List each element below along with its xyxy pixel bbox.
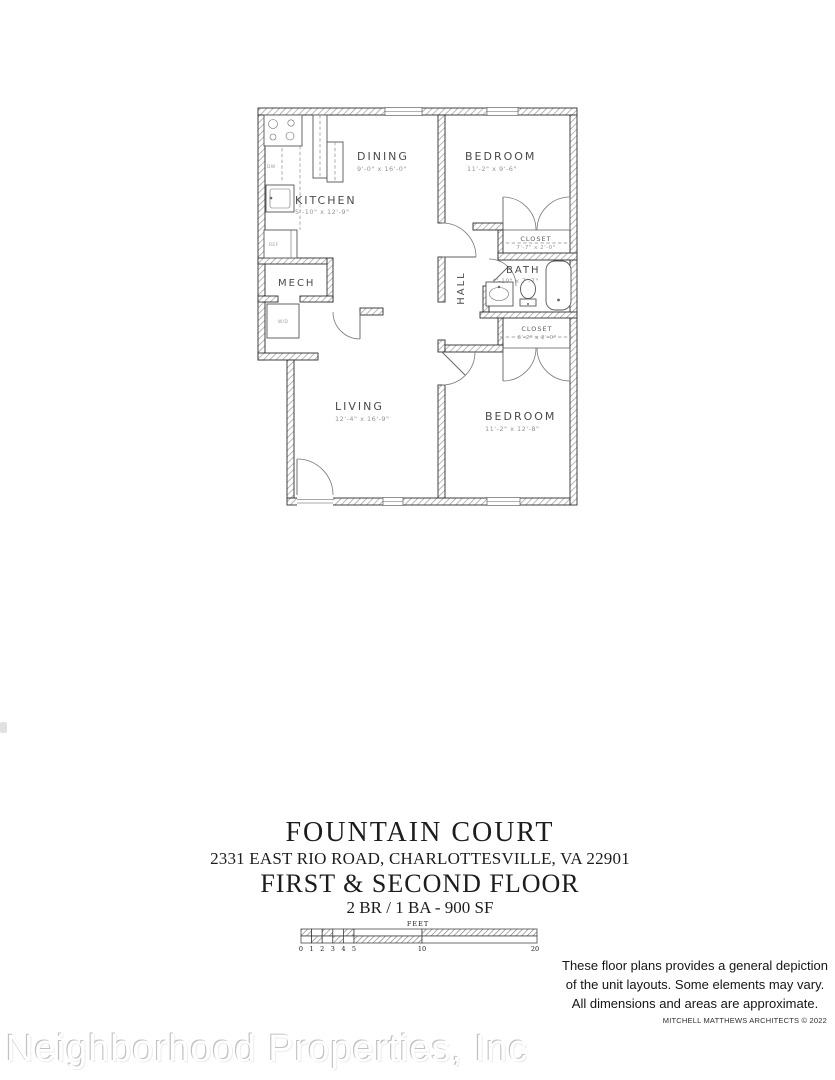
kitchen-label: KITCHEN [295,194,357,207]
architect-credit: MITCHELL MATTHEWS ARCHITECTS © 2022 [557,1016,833,1027]
closet-bottom-dims: 6'-2" x 2'-0" [517,335,556,341]
refrigerator-label: REF [269,242,279,248]
hall-label: HALL [456,271,467,305]
closet-top-label: CLOSET [520,235,551,243]
washer-dryer-label: W/D [278,319,289,325]
bathtub [546,261,571,310]
disclaimer-line: These floor plans provides a general dep… [557,957,833,976]
scanned-floor-plan-page: DW REF W/D DINING [0,0,835,1080]
scale-tick: 10 [418,945,426,953]
room-labels: DINING 9'-0" x 16'-0" KITCHEN 5'-10" x 1… [278,150,557,433]
dining-label: DINING [357,150,409,163]
bath-dims: 4'-10" x 7'-7" [492,278,539,285]
scale-tick: 1 [310,945,314,953]
scale-tick: 0 [299,945,303,953]
title-block: FOUNTAIN COURT 2331 EAST RIO ROAD, CHARL… [170,818,670,918]
closet-top-dims: 7'-7" x 2'-0" [516,245,555,251]
dishwasher-label: DW [267,164,276,170]
kitchen-fixtures: DW REF W/D [264,115,343,338]
mech-label: MECH [278,278,315,289]
walls [258,108,577,505]
bedroom-bottom-label: BEDROOM [485,410,556,423]
disclaimer-block: These floor plans provides a general dep… [557,957,833,1026]
scale-bar: FEET 0 1 2 3 4 5 10 20 [293,915,543,957]
scale-tick: 4 [341,945,345,953]
scale-tick: 2 [320,945,324,953]
disclaimer-line: All dimensions and areas are approximate… [557,995,833,1014]
living-label: LIVING [335,400,384,413]
kitchen-dims: 5'-10" x 12'-9" [295,208,350,216]
property-name: FOUNTAIN COURT [170,818,670,848]
dining-dims: 9'-0" x 16'-0" [357,165,407,173]
bedroom-top-label: BEDROOM [465,150,536,163]
bedroom-top-dims: 11'-2" x 9'-6" [467,165,517,173]
stove [264,115,302,146]
scan-edge-artifact [0,722,7,733]
company-watermark: Neighborhood Properties, Inc [6,1028,528,1071]
living-dims: 12'-4" x 16'-9" [335,415,390,423]
entry-door [297,459,333,506]
bath-label: BATH [506,265,541,276]
floor-plan-drawing: DW REF W/D DINING [240,90,600,520]
disclaimer-line: of the unit layouts. Some elements may v… [557,976,833,995]
closet-bottom-label: CLOSET [521,325,552,333]
scale-tick: 5 [352,945,356,953]
scale-unit-label: FEET [407,920,429,928]
property-address: 2331 EAST RIO ROAD, CHARLOTTESVILLE, VA … [170,848,670,869]
floor-designation: FIRST & SECOND FLOOR [170,869,670,898]
scale-tick: 20 [531,945,539,953]
bath-sink [486,282,513,306]
bedroom-bottom-dims: 11'-2" x 12'-8" [485,425,540,433]
scale-tick: 3 [331,945,335,953]
